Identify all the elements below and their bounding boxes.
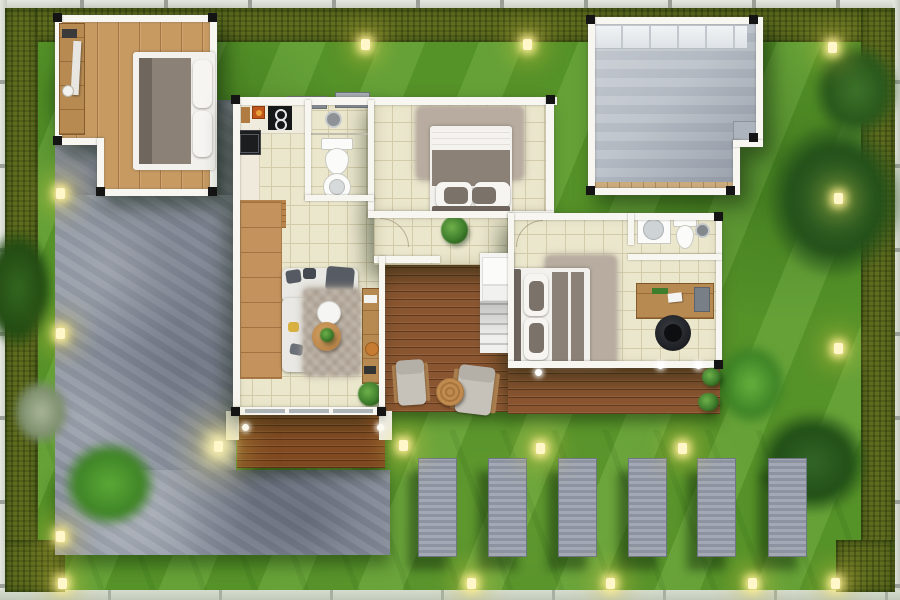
wall-bedroom2-east [546, 97, 554, 218]
garden-light [399, 440, 408, 451]
shrub-right-upper [812, 40, 900, 140]
wall [55, 15, 217, 22]
hedge-bottom-right [836, 540, 894, 592]
garden-light [56, 188, 65, 199]
bed-sheet-fold [432, 130, 510, 150]
wall-suite-south [508, 361, 722, 368]
garden-light [834, 193, 843, 204]
garden-light [58, 578, 67, 589]
stepping-pad [628, 458, 667, 557]
corner-post [377, 407, 386, 416]
detached-bedroom [55, 15, 217, 196]
wall [733, 140, 763, 147]
sidewalk-bottom [0, 590, 900, 600]
corner-post [208, 13, 217, 22]
wall-suite-north [508, 213, 722, 220]
canister-lid [256, 110, 262, 116]
sofa-cushion [303, 268, 316, 279]
corner-post [231, 407, 240, 416]
washbasin-bowl [329, 179, 345, 195]
garden-light [678, 443, 687, 454]
table-plant [320, 328, 334, 342]
chopping-board [241, 107, 250, 123]
desk-laptop [694, 287, 710, 312]
corner-post [726, 186, 735, 195]
deck-light [535, 369, 542, 376]
corner-post [208, 187, 217, 196]
console-bowl [365, 342, 379, 356]
deck-light [657, 362, 664, 369]
entry-deck [237, 413, 385, 468]
corner-post [586, 186, 595, 195]
glass-roof-band [595, 26, 747, 49]
garden-light [467, 578, 476, 589]
wall [588, 17, 595, 195]
shrub-driveway-edge [62, 440, 157, 528]
tree-top-right [765, 120, 900, 280]
garden-light [831, 578, 840, 589]
shower-screen [311, 133, 371, 135]
stepping-pad [768, 458, 807, 557]
wall-living-east [379, 256, 385, 415]
bed-blanket-stripe [571, 272, 584, 362]
bed-accent-pillow [529, 281, 544, 311]
wall-kitchen-bath [305, 100, 311, 200]
driveway-main [55, 195, 236, 473]
wall-suite-east [716, 213, 722, 368]
stepping-pad [697, 458, 736, 557]
wall-suite-west [508, 213, 514, 368]
office-chair-seat [664, 324, 682, 342]
deck-side-table [436, 378, 464, 406]
corner-post [714, 360, 723, 369]
wall-masterbath-west [628, 213, 634, 245]
bed-pillow [193, 111, 212, 157]
stepping-pad [488, 458, 527, 557]
bed-accent-pillow [529, 323, 544, 353]
covered-patio [588, 17, 763, 195]
sink-basin [240, 134, 259, 153]
deck-light [377, 424, 384, 431]
garden-light [536, 443, 545, 454]
garden-light [828, 42, 837, 53]
garden-light [361, 39, 370, 50]
cup [62, 85, 74, 97]
wall [55, 138, 103, 145]
shower-head [327, 113, 340, 126]
sofa-cushion [289, 343, 304, 356]
deck-plant [698, 393, 719, 411]
timber-sideboard [240, 201, 282, 379]
garden-light-driveway [214, 441, 223, 452]
corner-post [53, 136, 62, 145]
console-item-dark [364, 366, 376, 374]
corner-post [231, 95, 240, 104]
corner-post [53, 13, 62, 22]
desk-green-book [652, 288, 668, 294]
wall [103, 189, 217, 196]
wall [756, 17, 763, 145]
deck-plant [702, 368, 721, 386]
corner-post [96, 187, 105, 196]
stepping-pad [558, 458, 597, 557]
wall [588, 17, 763, 24]
shrub-by-deck [714, 342, 788, 426]
wall [588, 188, 738, 195]
armchair-back [395, 359, 424, 375]
side-table-white [318, 302, 340, 324]
deck-armchair [391, 359, 430, 406]
bed-accent-pillow [444, 187, 468, 204]
stove-burner [275, 119, 287, 131]
desk-papers [668, 292, 683, 302]
garden-light [523, 39, 532, 50]
corner-post [714, 212, 723, 221]
bed-blanket-fold [139, 58, 152, 164]
corner-post [749, 133, 758, 142]
console-item [364, 295, 377, 303]
garden-light [606, 578, 615, 589]
wall-west [233, 97, 240, 415]
deck-light [695, 362, 702, 369]
garden-light [748, 578, 757, 589]
wall-masterbath-south [628, 254, 722, 260]
garden-light [834, 343, 843, 354]
bed-pillow [193, 60, 212, 108]
wall-north [233, 97, 557, 105]
corner-post [586, 15, 595, 24]
bed-accent-pillow [472, 187, 496, 204]
vanity-basin [643, 219, 664, 240]
site-plan [0, 0, 900, 600]
deck-light [242, 424, 249, 431]
garden-light [56, 328, 65, 339]
stepping-pad [418, 458, 457, 557]
hall-plant [441, 216, 468, 244]
shower-head [697, 225, 708, 236]
sofa-cushion [285, 269, 302, 284]
sofa-cushion-yellow [288, 322, 299, 332]
corner-post [749, 15, 758, 24]
desk-item [62, 29, 77, 38]
plant-pale-left [12, 378, 70, 446]
garden-light [56, 531, 65, 542]
sliding-glass-door [245, 409, 373, 413]
bed-blanket-stripe [552, 272, 568, 362]
corner-post [546, 95, 555, 104]
wall-bath-south [305, 195, 374, 201]
bed-blanket [432, 150, 510, 186]
